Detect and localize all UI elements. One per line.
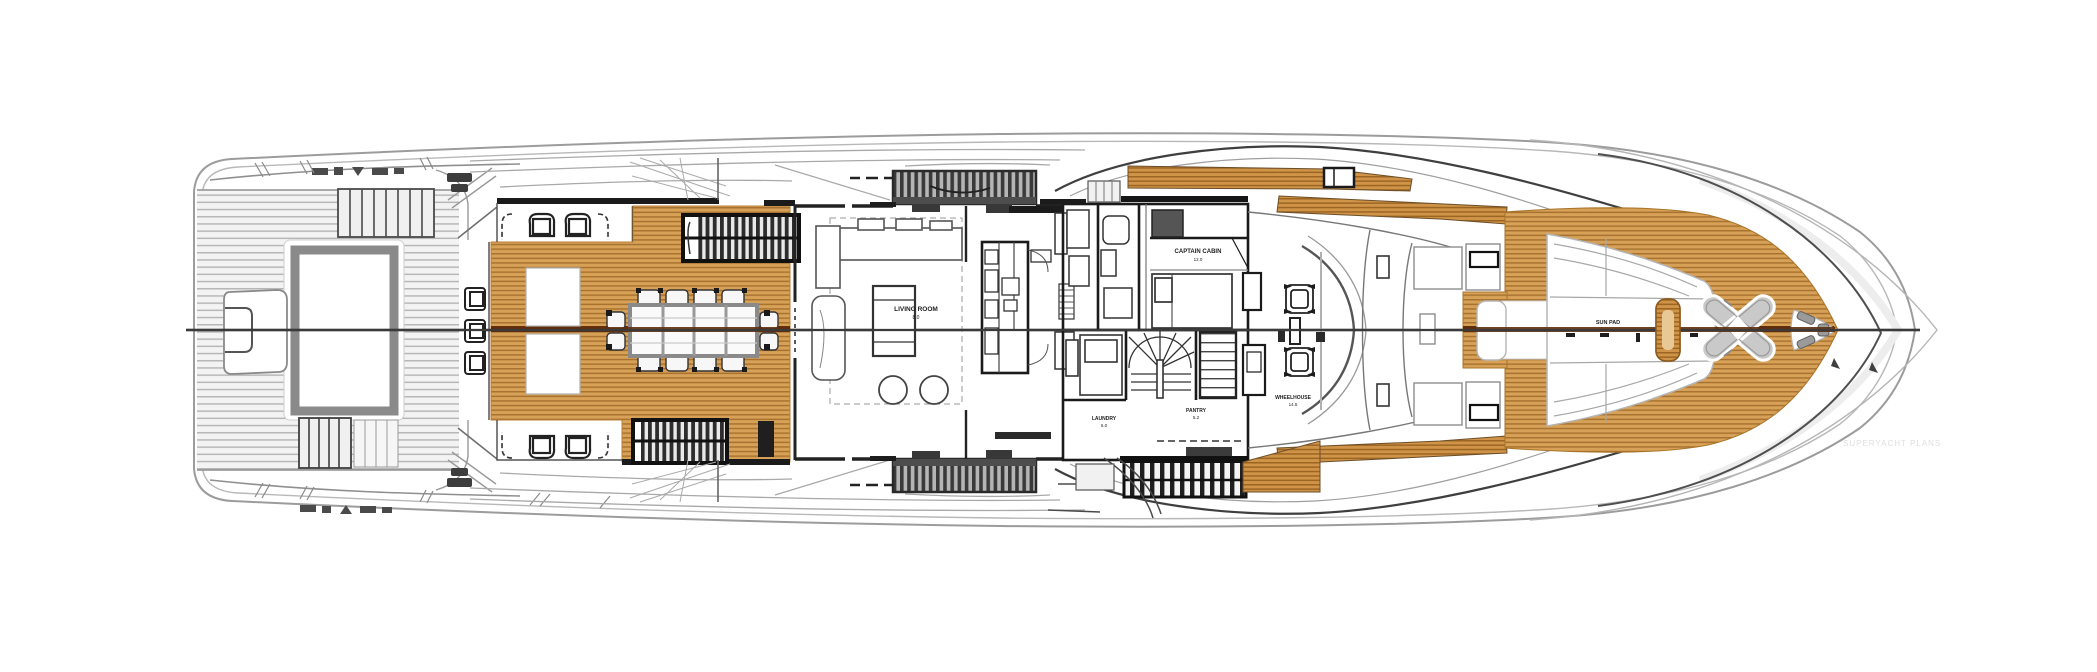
svg-text:LAUNDRY: LAUNDRY (1092, 416, 1117, 422)
svg-text:12.0: 12.0 (1194, 257, 1203, 262)
svg-text:14.5: 14.5 (1289, 402, 1298, 407)
svg-text:6.0: 6.0 (1101, 423, 1108, 428)
svg-text:5.2: 5.2 (1193, 415, 1200, 420)
svg-text:LIVING ROOM: LIVING ROOM (894, 306, 938, 313)
svg-text:SUPERYACHT PLANS: SUPERYACHT PLANS (1843, 439, 1941, 448)
svg-text:PANTRY: PANTRY (1186, 408, 1207, 414)
svg-text:SUN PAD: SUN PAD (1596, 320, 1620, 326)
svg-text:CAPTAIN CABIN: CAPTAIN CABIN (1175, 249, 1222, 255)
svg-text:8.0: 8.0 (913, 315, 920, 321)
svg-text:WHEELHOUSE: WHEELHOUSE (1275, 395, 1312, 401)
